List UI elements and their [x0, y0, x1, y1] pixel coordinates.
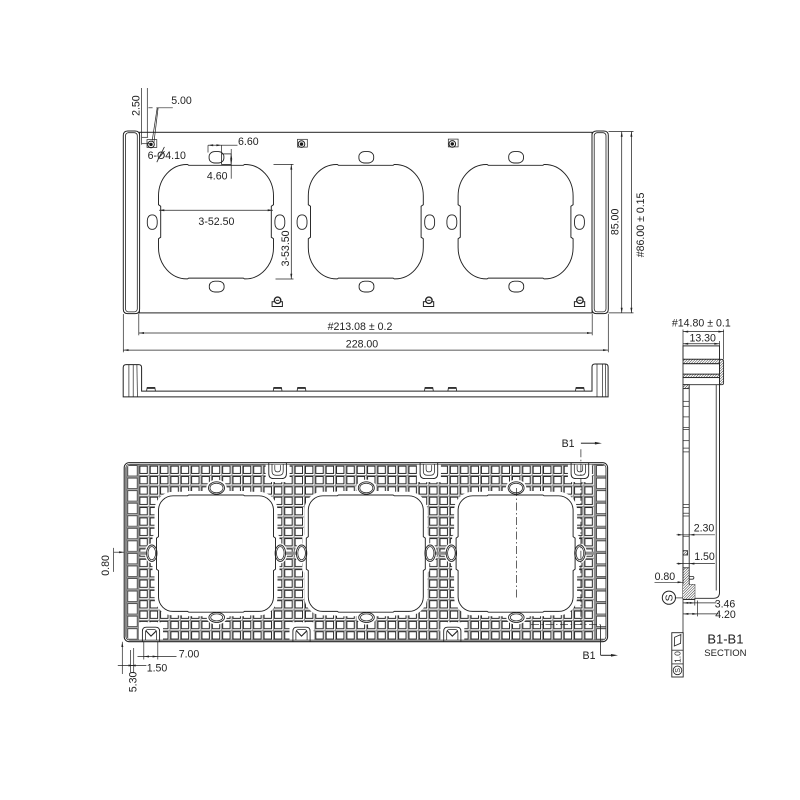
svg-text:2.30: 2.30 — [694, 522, 715, 534]
svg-text:1.50: 1.50 — [147, 663, 168, 675]
svg-text:1.0: 1.0 — [673, 651, 683, 663]
svg-text:4.20: 4.20 — [715, 609, 736, 621]
svg-text:#14.80 ± 0.1: #14.80 ± 0.1 — [672, 317, 731, 329]
svg-text:0.80: 0.80 — [655, 571, 676, 583]
svg-text:6-Ø4.10: 6-Ø4.10 — [148, 150, 186, 162]
svg-text:B1: B1 — [562, 438, 575, 450]
svg-text:0.80: 0.80 — [100, 555, 112, 576]
svg-text:7.00: 7.00 — [179, 649, 200, 661]
svg-text:228.00: 228.00 — [346, 339, 379, 351]
svg-text:85.00: 85.00 — [610, 209, 622, 236]
svg-text:1.50: 1.50 — [694, 551, 715, 563]
svg-text:S: S — [675, 668, 682, 673]
svg-text:5.00: 5.00 — [171, 95, 192, 107]
svg-text:2.50: 2.50 — [130, 95, 142, 116]
svg-text:#86.00 ± 0.15: #86.00 ± 0.15 — [635, 192, 647, 257]
svg-text:5.30: 5.30 — [128, 671, 140, 692]
svg-text:13.30: 13.30 — [689, 332, 716, 344]
svg-text:B1: B1 — [583, 650, 596, 662]
svg-text:#213.08 ± 0.2: #213.08 ± 0.2 — [328, 321, 393, 333]
svg-text:4.60: 4.60 — [207, 171, 228, 183]
svg-text:3-53.50: 3-53.50 — [280, 230, 292, 266]
svg-text:3-52.50: 3-52.50 — [198, 216, 234, 228]
svg-text:6.60: 6.60 — [238, 136, 259, 148]
svg-text:B1-B1: B1-B1 — [707, 632, 743, 647]
svg-text:S: S — [663, 594, 675, 601]
svg-text:SECTION: SECTION — [704, 648, 746, 659]
